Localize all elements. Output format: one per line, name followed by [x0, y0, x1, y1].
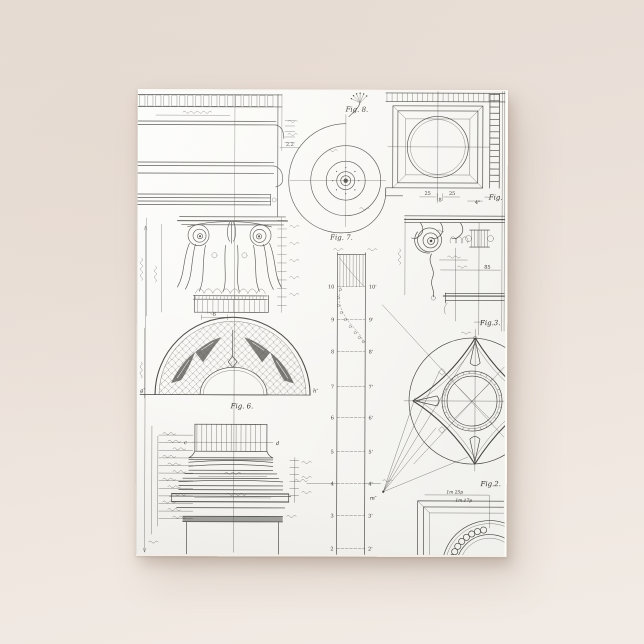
- shaft-diagram: [307, 253, 382, 555]
- label-0: 10: [328, 284, 334, 290]
- figure-label-fig7: Fig. 7.: [329, 234, 353, 242]
- figure-label-fig2: Fig.2.: [480, 480, 502, 488]
- label-cornice_offset: 2.2: [286, 142, 294, 148]
- label-8: 2': [368, 547, 373, 553]
- label-7: 3: [330, 513, 333, 519]
- label-1: 9': [369, 318, 374, 324]
- label-coffer_center: 8: [439, 197, 442, 203]
- arch-niche-figure: [140, 317, 310, 395]
- label-capital_drum: 8: [213, 312, 216, 318]
- corinthian-capital-figure: [146, 217, 287, 320]
- cornice-figure: [138, 94, 300, 217]
- label-coffer_right: 25: [449, 191, 455, 197]
- label-2: 8: [331, 349, 334, 355]
- label-0: 10': [369, 285, 377, 291]
- star-coffer-figure: [382, 305, 506, 471]
- label-base_left: c: [184, 440, 187, 446]
- column-base-figure: [152, 424, 295, 554]
- label-3: 7: [331, 384, 334, 390]
- figure-label-fig3: Fig.3.: [479, 319, 501, 327]
- figure-label-fig8: Fig. 8.: [345, 106, 369, 114]
- figure-label-fig6: Fig. 6.: [230, 402, 254, 410]
- label-arch_right: h″: [313, 389, 318, 395]
- figure-label-edge: Fig.: [488, 194, 503, 202]
- label-rosette_row2: 1m.17p: [455, 499, 472, 504]
- photo-backdrop: 1010'99'88'77'66'55'44'33'22'258254"852.…: [0, 0, 644, 644]
- label-2: 8': [369, 350, 374, 356]
- label-4: 6': [368, 416, 373, 422]
- jigsaw-puzzle: 1010'99'88'77'66'55'44'33'22'258254"852.…: [136, 89, 508, 557]
- label-coffer_left: 25: [424, 191, 430, 197]
- label-8: 2: [330, 546, 333, 552]
- label-coffer_inch: 4": [475, 200, 481, 206]
- label-4: 6: [331, 415, 334, 421]
- label-7: 3': [368, 514, 373, 520]
- label-3: 7': [369, 385, 374, 391]
- ionic-entablature-figure: [404, 216, 504, 335]
- label-6: 4': [368, 482, 373, 488]
- label-5: 5': [368, 450, 373, 456]
- label-arch_left: g″: [140, 388, 145, 394]
- label-5: 5: [331, 449, 334, 455]
- label-6: 4: [331, 481, 334, 487]
- rosette-panel-figure: [417, 495, 506, 555]
- label-entablature_width: 85: [484, 265, 490, 271]
- puzzle-artwork: 1010'99'88'77'66'55'44'33'22'258254"852.…: [137, 90, 506, 555]
- label-fan_origin: m″: [370, 496, 377, 502]
- fig7-volute-diagram: [289, 102, 387, 233]
- label-base_right: d: [276, 441, 280, 447]
- label-rosette_row1: 1m 25p: [446, 490, 463, 495]
- label-1: 9: [331, 317, 334, 323]
